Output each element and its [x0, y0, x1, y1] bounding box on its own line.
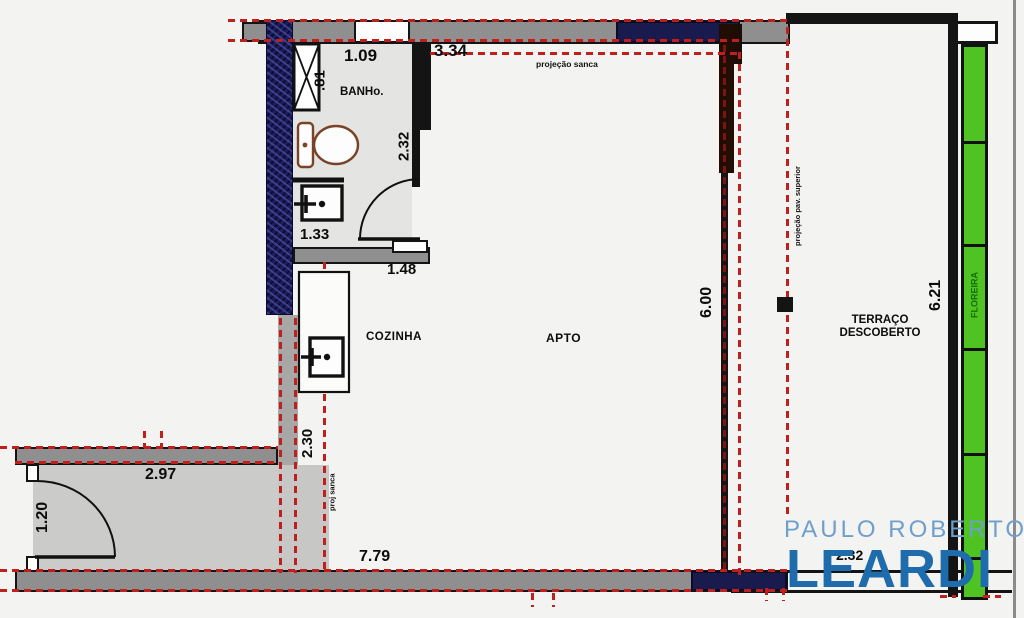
watermark-brand: LEARDI — [786, 538, 993, 600]
projection-tick — [782, 588, 785, 601]
projection-line-top-upper — [228, 19, 790, 22]
projection-line-on-divider-wall — [723, 45, 726, 570]
projection-line-sanca-top — [430, 52, 738, 55]
wall-divider-thick — [719, 24, 734, 173]
dimension-bath-width: 1.09 — [344, 46, 377, 66]
annotation-upper-floor-projection: projeção pav. superior — [790, 146, 805, 266]
dimension-hall-depth: 1.20 — [31, 492, 55, 542]
projection-line-upper-floor — [786, 27, 789, 519]
entry-door-jamb-top — [26, 464, 39, 482]
projection-line-bottom-lower — [0, 589, 788, 592]
room-label-apartment: APTO — [546, 331, 581, 345]
projection-tick — [552, 593, 555, 607]
planter-divider — [964, 453, 985, 456]
projection-tick — [531, 593, 534, 607]
dimension-hall-width: 2.97 — [145, 466, 176, 484]
projection-line-hall-top-lower — [15, 461, 278, 464]
bathroom-door-jamb — [392, 240, 428, 253]
room-label-kitchen: COZINHA — [366, 331, 422, 343]
wall-terrace-right — [948, 24, 958, 597]
projection-tick — [143, 431, 146, 448]
dimension-sink-wall: 1.33 — [300, 226, 329, 243]
dimension-apto-depth: 6.00 — [695, 278, 719, 326]
projection-line-top-lower — [228, 39, 740, 42]
floorplan-page: BANHo. COZINHA APTO TERRAÇO DESCOBERTO F… — [0, 0, 1024, 618]
column-marker — [777, 297, 793, 312]
projection-line-bottom-upper — [0, 569, 788, 572]
dimension-bottom-span: 7.79 — [359, 548, 390, 566]
room-label-planter: FLOREIRA — [963, 256, 986, 334]
annotation-ceiling-projection: projeção sanca — [536, 59, 598, 69]
projection-tick — [765, 588, 768, 601]
kitchen-sink — [310, 338, 343, 376]
terrace-top-right-box — [951, 21, 998, 44]
annotation-ceiling-projection-short: proj sanca — [324, 462, 340, 522]
wall-left-hatched — [266, 20, 293, 315]
dimension-kitchen-depth: 2.30 — [297, 420, 318, 466]
dimension-shaft-width: .81 — [310, 60, 330, 102]
projection-line-sanca-vert — [323, 262, 326, 573]
room-label-terrace: TERRAÇO DESCOBERTO — [830, 314, 930, 340]
dimension-top-span: 3.34 — [434, 41, 467, 61]
planter-divider — [964, 244, 985, 247]
planter-divider — [964, 348, 985, 351]
wall-bathroom-right-thick — [412, 44, 431, 130]
projection-line-hall-top-upper — [0, 446, 278, 449]
wall-terrace-top — [786, 13, 958, 24]
dimension-bath-length: 2.32 — [393, 122, 415, 170]
planter-divider — [964, 141, 985, 144]
projection-line-strip-left — [279, 318, 282, 573]
room-label-bathroom: BANHo. — [340, 86, 383, 98]
dimension-terrace-depth: 6.21 — [923, 270, 949, 320]
projection-line-divider-right — [738, 52, 741, 575]
kitchen-projection-strip-lower — [278, 465, 329, 573]
projection-tick — [160, 431, 163, 448]
dimension-bath-door-wall: 1.48 — [387, 261, 416, 278]
